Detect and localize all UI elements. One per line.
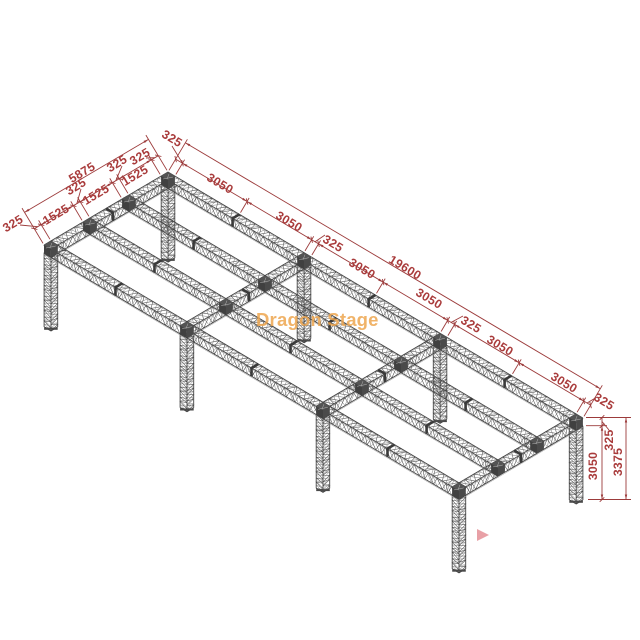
svg-text:325: 325	[159, 127, 184, 150]
svg-text:3050: 3050	[586, 452, 600, 480]
svg-text:3050: 3050	[413, 285, 444, 312]
svg-text:325: 325	[591, 390, 616, 413]
svg-text:325: 325	[104, 152, 129, 175]
svg-text:3050: 3050	[204, 170, 235, 197]
svg-text:1525: 1525	[40, 201, 71, 228]
svg-text:Dragon Stage: Dragon Stage	[256, 309, 379, 330]
svg-text:325: 325	[127, 145, 152, 168]
svg-text:19600: 19600	[386, 252, 424, 282]
svg-text:325: 325	[602, 429, 616, 450]
svg-text:3050: 3050	[346, 255, 377, 282]
svg-text:3375: 3375	[611, 448, 625, 476]
svg-text:3050: 3050	[273, 208, 304, 235]
svg-text:325: 325	[0, 212, 25, 235]
